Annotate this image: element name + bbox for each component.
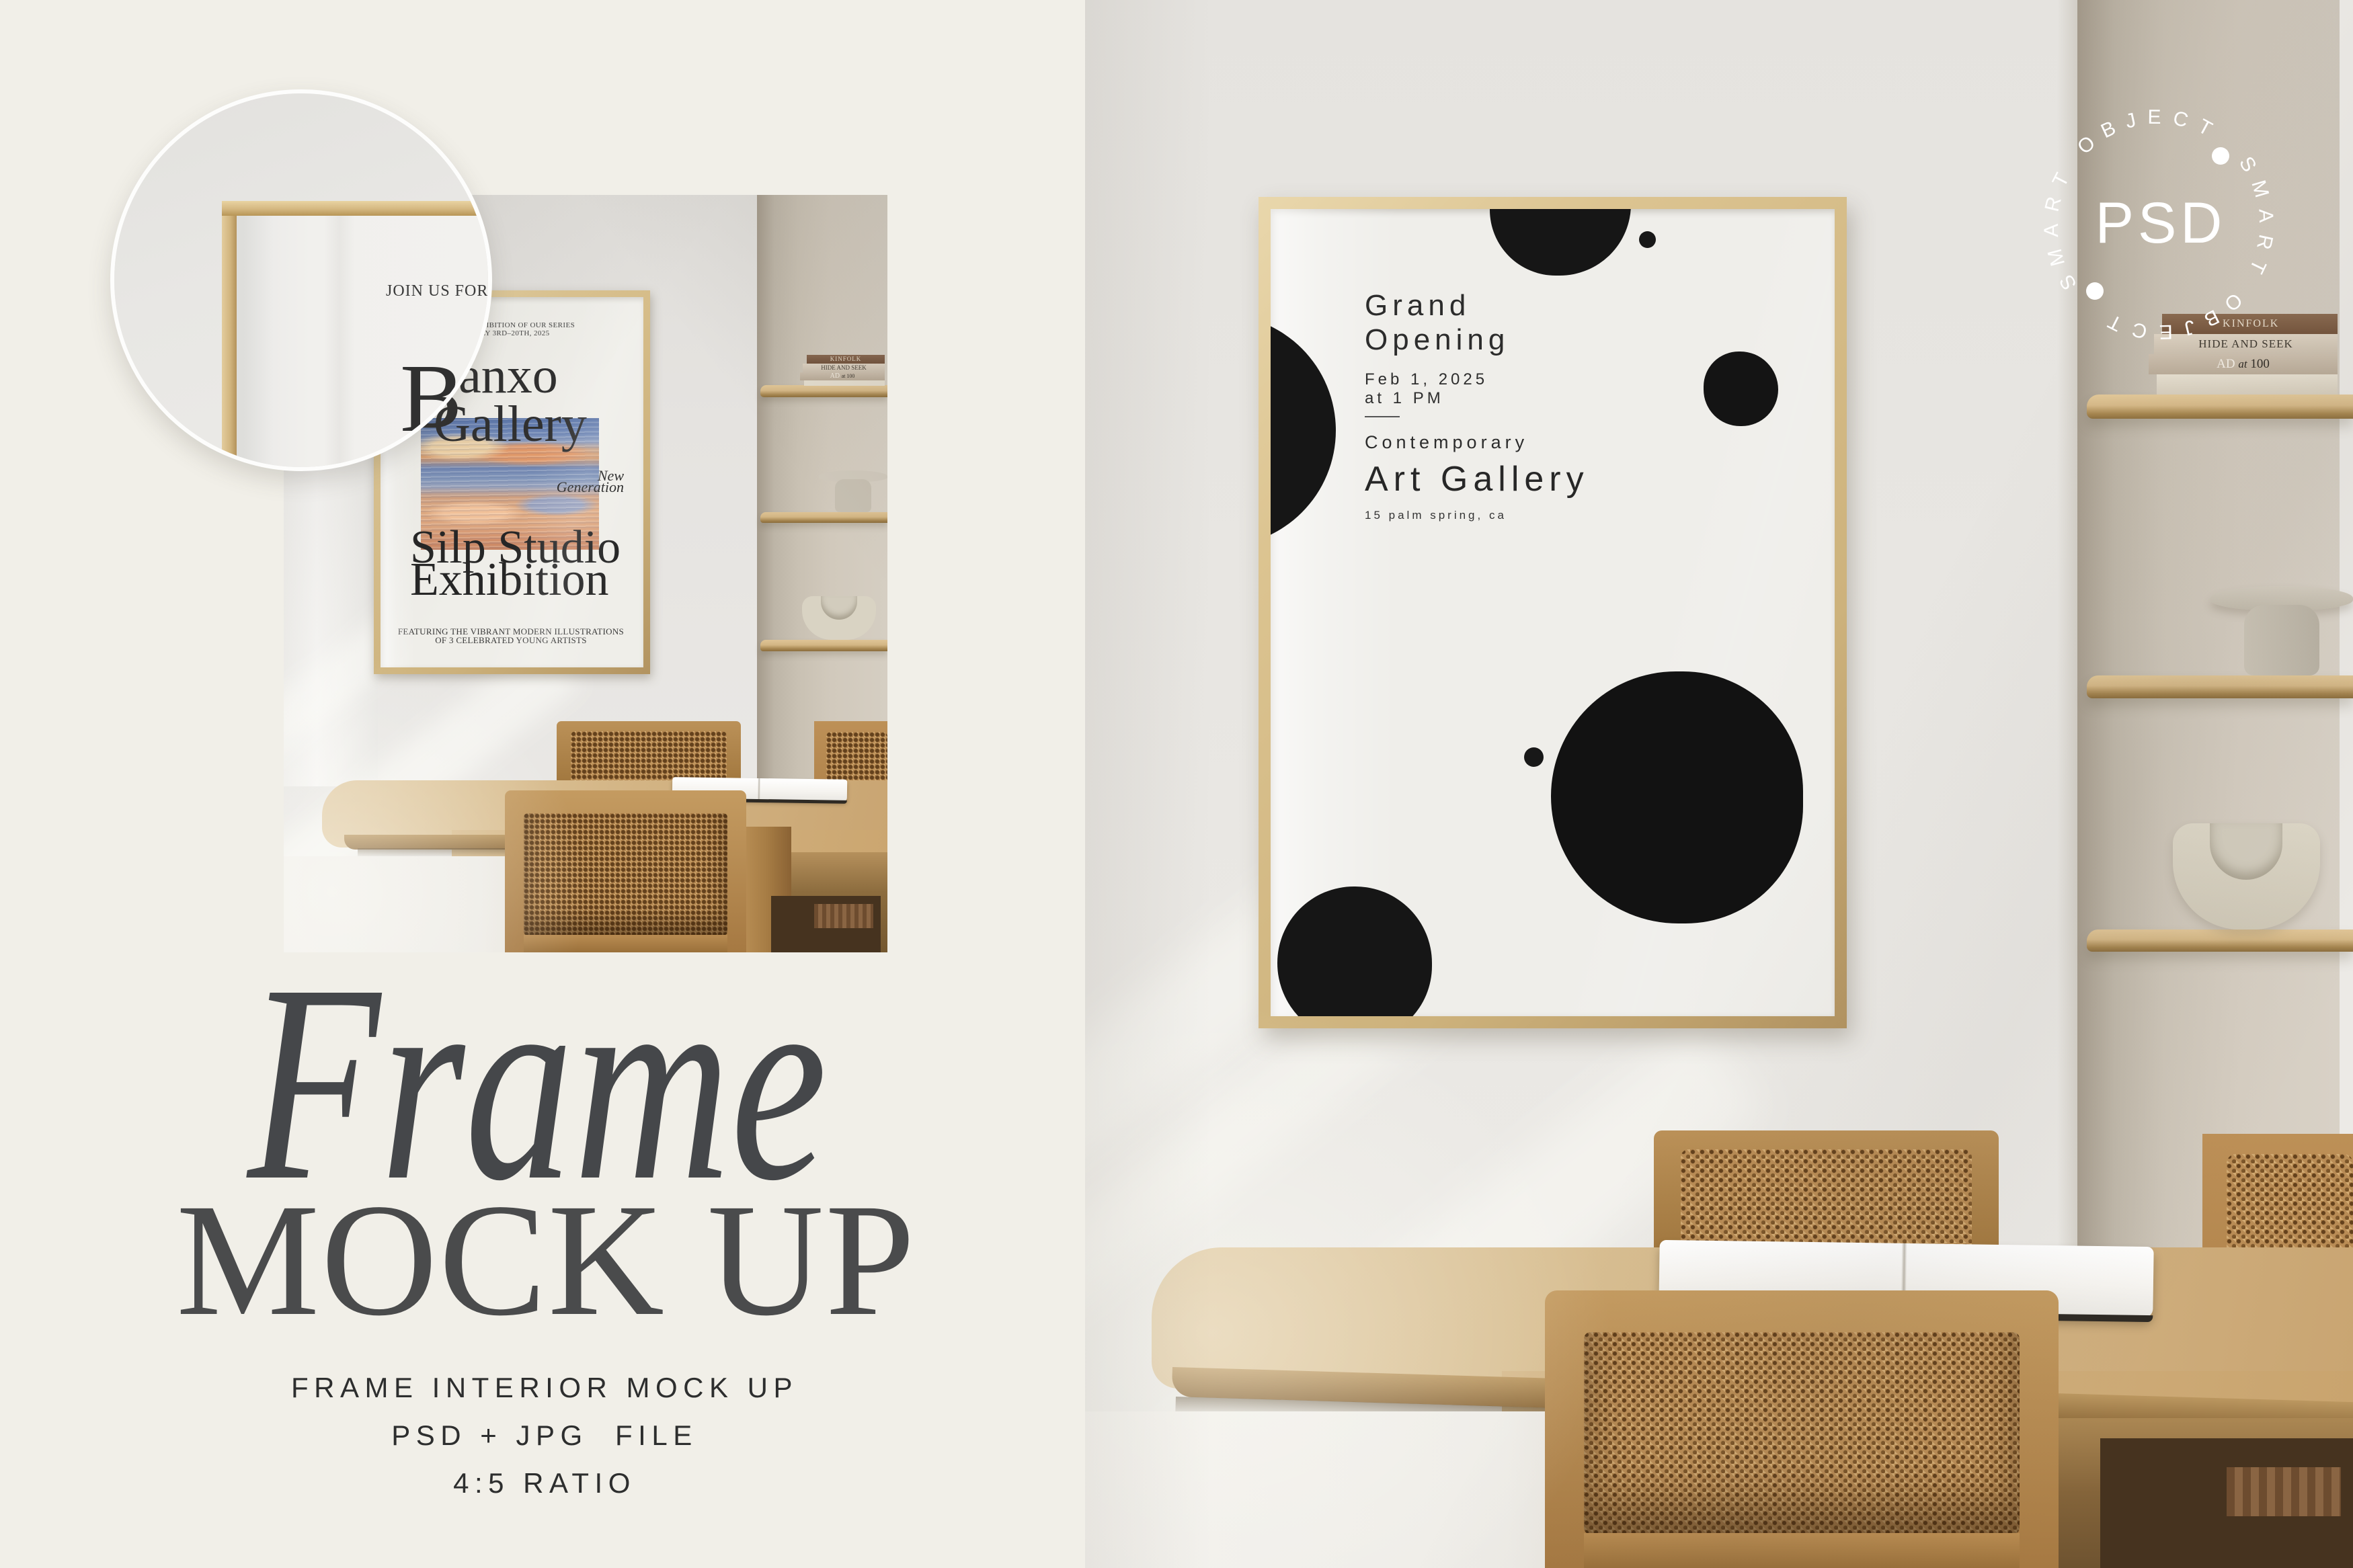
svg-text:PSD: PSD (2096, 191, 2227, 255)
